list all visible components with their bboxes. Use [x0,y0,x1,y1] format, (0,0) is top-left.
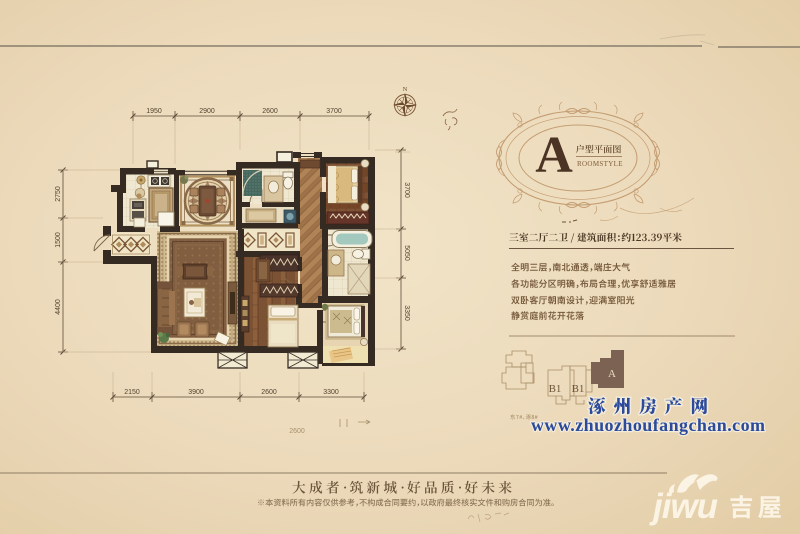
svg-text:3350: 3350 [403,305,410,321]
svg-text:2150: 2150 [124,389,140,396]
svg-text:2600: 2600 [261,389,277,396]
svg-text:3900: 3900 [188,389,204,396]
svg-text:B1: B1 [572,383,585,395]
svg-text:3700: 3700 [326,108,342,115]
svg-text:A: A [608,368,616,380]
svg-text:N: N [403,86,408,93]
svg-text:ROOMSTYLE: ROOMSTYLE [577,160,623,168]
svg-text:2750: 2750 [55,186,62,202]
svg-text:2600: 2600 [289,428,305,435]
svg-text:1500: 1500 [55,232,62,248]
svg-text:A: A [535,127,573,184]
svg-text:3300: 3300 [323,389,339,396]
svg-text:3700: 3700 [403,182,410,198]
svg-text:www.zhuozhoufangchan.com: www.zhuozhoufangchan.com [531,415,765,435]
svg-text:2900: 2900 [199,108,215,115]
svg-text:4400: 4400 [55,299,62,315]
svg-text:2600: 2600 [262,108,278,115]
svg-text:jiwu: jiwu [649,487,718,526]
svg-text:B1: B1 [549,383,562,395]
svg-text:1950: 1950 [146,108,162,115]
svg-text:5050: 5050 [403,245,410,261]
